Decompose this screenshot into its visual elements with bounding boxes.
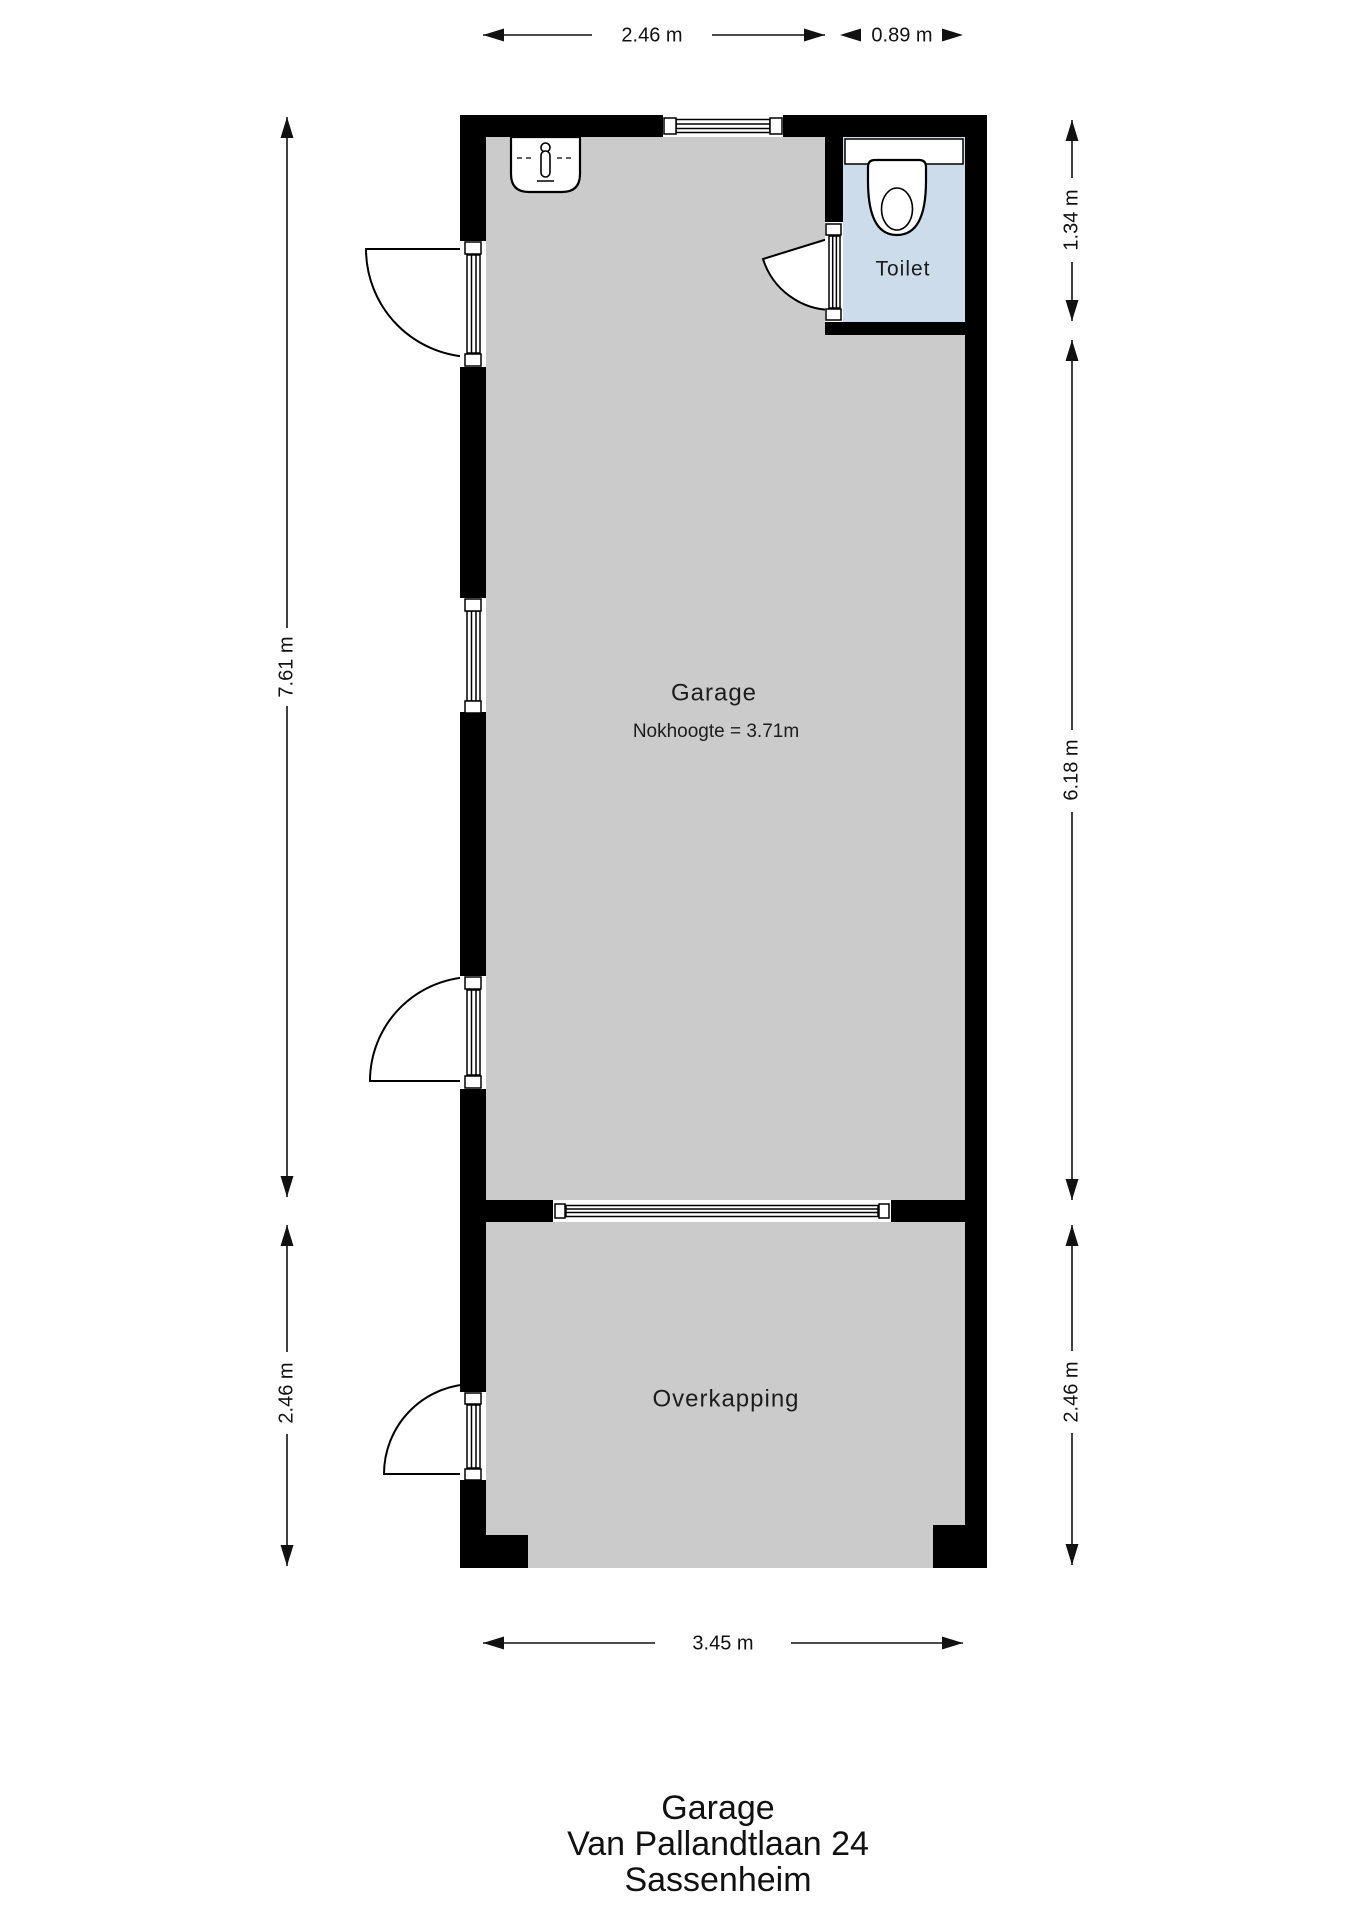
wall-divider-right-stub <box>891 1200 965 1222</box>
dim-top-garage-width: 2.46 m <box>483 24 825 46</box>
wall-left-3 <box>460 712 486 976</box>
dim-label-bottom: 3.45 m <box>692 1632 753 1654</box>
toilet-label: Toilet <box>875 258 930 281</box>
window-top <box>663 115 783 137</box>
door-swing-top-left <box>366 249 474 357</box>
dim-label-left-overkapping: 2.46 m <box>275 1362 297 1423</box>
dim-label-right-overkapping: 2.46 m <box>1060 1361 1082 1422</box>
wall-top-right-segment <box>783 115 987 137</box>
wall-toilet-divider <box>825 137 843 222</box>
dim-right-garage-height: 6.18 m <box>1060 340 1082 1200</box>
footer-line-1: Garage <box>661 1789 774 1827</box>
wall-left-1 <box>460 137 486 241</box>
dim-left-garage-height: 7.61 m <box>275 117 297 1197</box>
door-top-left <box>460 241 486 367</box>
door-overkapping-left <box>460 1392 486 1480</box>
door-mid-left <box>460 976 486 1089</box>
wall-right <box>965 115 987 1568</box>
door-toilet <box>825 222 843 322</box>
wall-left-4 <box>460 1089 486 1392</box>
floors <box>486 137 965 1568</box>
wall-top-left-segment <box>460 115 663 137</box>
wall-bottom-left-foot <box>460 1535 528 1568</box>
dim-label-right-garage: 6.18 m <box>1060 739 1082 800</box>
footer-title: Garage Van Pallandtlaan 24 Sassenheim <box>567 1789 869 1899</box>
dim-left-overkapping-height: 2.46 m <box>275 1225 297 1566</box>
wall-bottom-right-foot <box>933 1525 987 1568</box>
dim-label-top-toilet: 0.89 m <box>871 24 932 46</box>
overkapping-label: Overkapping <box>652 1385 799 1412</box>
dim-label-top-garage: 2.46 m <box>621 24 682 46</box>
wall-left-2 <box>460 367 486 598</box>
sink-icon <box>511 137 580 192</box>
floor-plan-svg: 2.46 m 0.89 m 7.61 m 2.46 m <box>0 0 1358 1920</box>
window-divider <box>553 1200 891 1222</box>
door-swing-mid-left <box>370 977 474 1081</box>
dim-right-toilet-height: 1.34 m <box>1060 120 1082 321</box>
garage-sublabel: Nokhoogte = 3.71m <box>633 721 799 742</box>
dim-label-left-garage: 7.61 m <box>275 636 297 697</box>
floor-plan-page: 2.46 m 0.89 m 7.61 m 2.46 m <box>0 0 1358 1920</box>
footer-line-3: Sassenheim <box>624 1861 811 1899</box>
garage-label: Garage <box>671 679 757 706</box>
footer-line-2: Van Pallandtlaan 24 <box>567 1825 869 1863</box>
toilet-icon <box>868 160 926 235</box>
dim-bottom-width: 3.45 m <box>483 1632 963 1654</box>
dim-right-overkapping-height: 2.46 m <box>1060 1225 1082 1565</box>
dim-top-toilet-width: 0.89 m <box>840 24 963 46</box>
dim-label-right-toilet: 1.34 m <box>1060 189 1082 250</box>
wall-divider-left-stub <box>460 1200 553 1222</box>
window-left <box>460 598 486 713</box>
wall-toilet-bottom <box>825 322 965 335</box>
